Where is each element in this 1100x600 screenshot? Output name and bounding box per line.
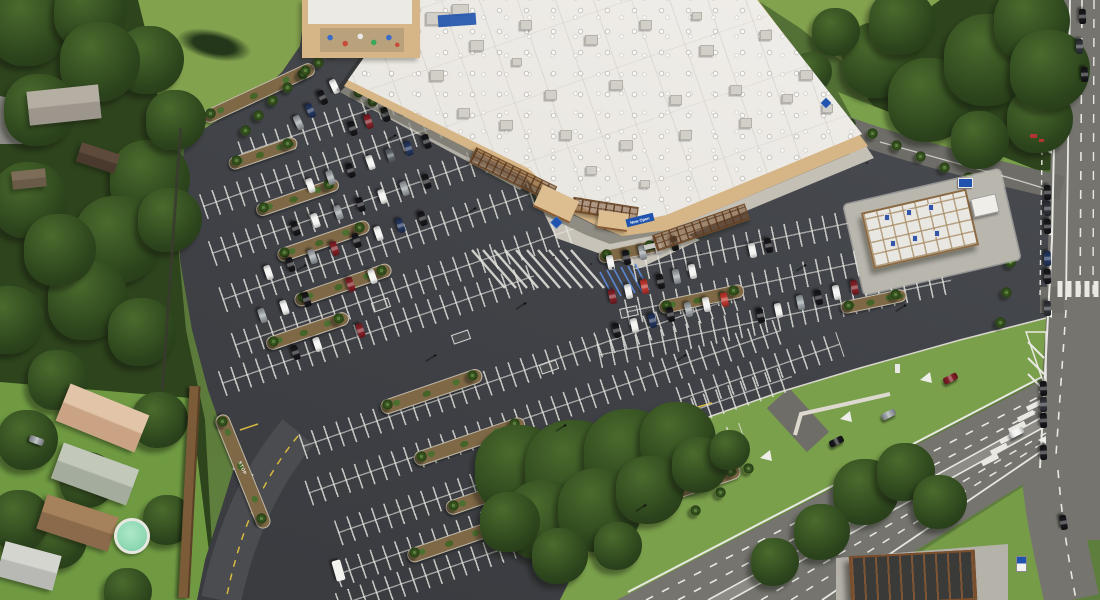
rooftop-hvac-unit bbox=[740, 118, 752, 128]
palm-tree bbox=[253, 110, 264, 121]
car bbox=[1039, 444, 1047, 459]
palm-tree bbox=[995, 317, 1006, 328]
outparcel-building bbox=[849, 550, 977, 600]
palm-tree bbox=[258, 202, 269, 213]
car bbox=[1080, 66, 1088, 81]
rooftop-hvac-unit bbox=[640, 180, 650, 188]
car bbox=[1043, 218, 1051, 233]
palm-tree bbox=[891, 140, 902, 151]
car bbox=[1078, 8, 1086, 23]
palm-tree bbox=[376, 265, 387, 276]
fuel-pump bbox=[928, 204, 934, 211]
rooftop-hvac-unit bbox=[610, 80, 623, 90]
annex-roof bbox=[308, 0, 412, 24]
rooftop-hvac-unit bbox=[512, 58, 522, 66]
rooftop-hvac-unit bbox=[620, 140, 633, 150]
aerial-photo-scene: Now Open STOP bbox=[0, 0, 1100, 600]
rooftop-hvac-unit bbox=[520, 20, 532, 30]
car bbox=[1075, 38, 1083, 53]
car bbox=[1043, 200, 1051, 215]
palm-tree bbox=[256, 513, 267, 524]
palm-tree bbox=[240, 125, 251, 136]
rooftop-hvac-unit bbox=[640, 20, 652, 30]
rooftop-hvac-unit bbox=[585, 35, 598, 45]
palm-tree bbox=[354, 222, 365, 233]
fuel-pump bbox=[884, 214, 890, 221]
rooftop-hvac-unit bbox=[760, 30, 772, 40]
rooftop-hvac-unit bbox=[730, 85, 742, 95]
palm-tree bbox=[267, 95, 278, 106]
fuel-pump bbox=[912, 235, 918, 242]
palm-tree bbox=[313, 57, 324, 68]
fuel-pump bbox=[890, 240, 896, 247]
outdoor-merchandise-yard bbox=[320, 28, 404, 52]
palm-tree bbox=[300, 65, 311, 76]
car bbox=[1043, 184, 1051, 199]
yellow-curb-mark bbox=[240, 424, 258, 430]
roadside-bench bbox=[1039, 139, 1044, 142]
median-sign bbox=[895, 364, 900, 373]
car bbox=[1039, 412, 1047, 427]
entrance-monument-sign bbox=[958, 178, 973, 188]
rooftop-hvac-unit bbox=[500, 120, 513, 130]
palm-tree bbox=[416, 451, 427, 462]
rooftop-hvac-unit bbox=[458, 108, 470, 118]
outparcel-sign bbox=[1016, 556, 1027, 572]
car bbox=[1043, 250, 1051, 265]
fuel-pump bbox=[906, 209, 912, 216]
palm-tree bbox=[282, 138, 293, 149]
rooftop-hvac-unit bbox=[782, 94, 793, 103]
palm-tree bbox=[715, 487, 726, 498]
car bbox=[1043, 268, 1051, 283]
car bbox=[1039, 396, 1047, 411]
rooftop-hvac-unit bbox=[586, 166, 597, 175]
palm-tree bbox=[867, 128, 878, 139]
palm-tree bbox=[843, 300, 854, 311]
palm-tree bbox=[690, 505, 701, 516]
palm-tree bbox=[1001, 287, 1012, 298]
rooftop-hvac-unit bbox=[470, 40, 484, 51]
palm-tree bbox=[915, 151, 926, 162]
palm-tree bbox=[448, 500, 459, 511]
rooftop-hvac-unit bbox=[670, 95, 682, 105]
rooftop-hvac-unit bbox=[560, 130, 572, 140]
roadside-bench bbox=[1030, 134, 1037, 138]
rooftop-hvac-unit bbox=[545, 90, 557, 100]
fuel-pump bbox=[934, 230, 940, 237]
rooftop-hvac-unit bbox=[700, 45, 714, 56]
car bbox=[1039, 380, 1047, 395]
palm-tree bbox=[467, 370, 478, 381]
rooftop-hvac-unit bbox=[430, 70, 444, 81]
rooftop-hvac-unit bbox=[800, 70, 813, 80]
palm-tree bbox=[743, 463, 754, 474]
palm-tree bbox=[939, 162, 950, 173]
palm-tree bbox=[268, 336, 279, 347]
rooftop-hvac-unit bbox=[692, 12, 702, 20]
car bbox=[1043, 300, 1051, 315]
palm-tree bbox=[282, 82, 293, 93]
residential-house bbox=[11, 168, 47, 189]
receiving-annex bbox=[302, 0, 420, 58]
rooftop-hvac-unit bbox=[680, 130, 692, 140]
swimming-pool bbox=[114, 518, 150, 554]
